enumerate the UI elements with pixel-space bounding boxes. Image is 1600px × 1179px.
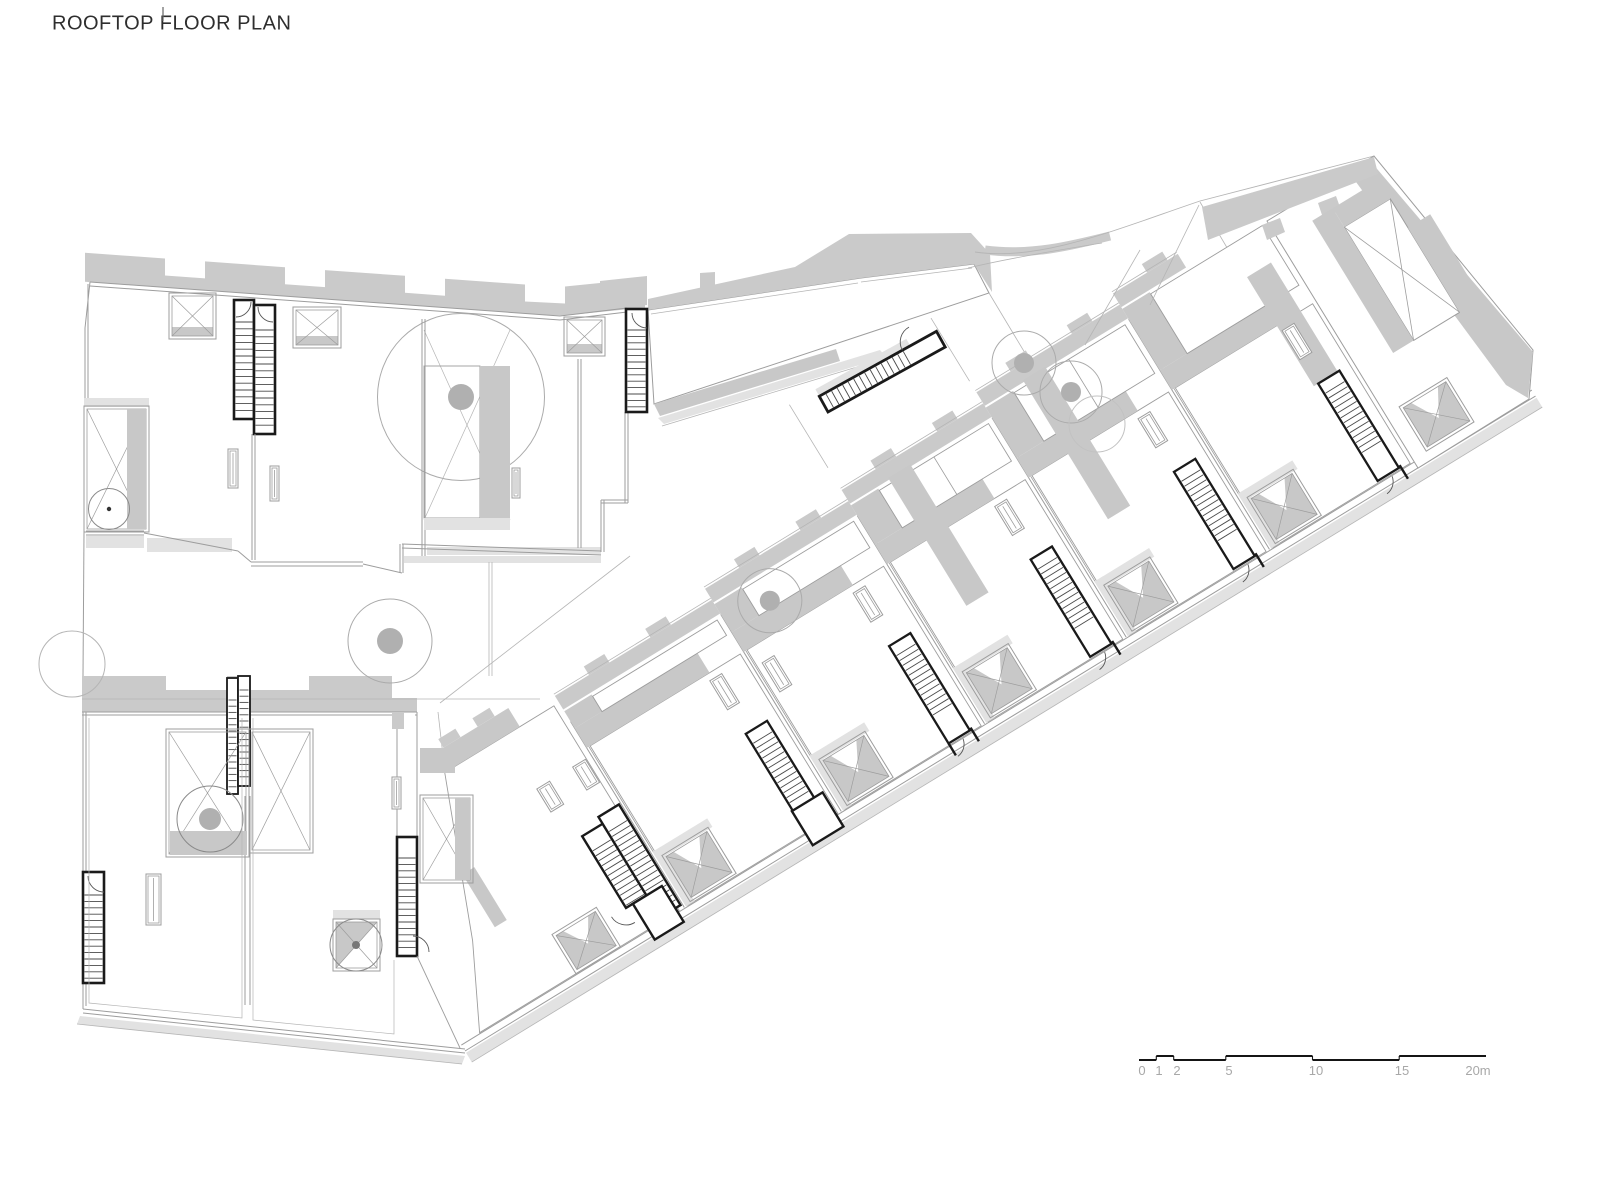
svg-text:15: 15 <box>1395 1063 1409 1078</box>
svg-text:2: 2 <box>1173 1063 1180 1078</box>
svg-text:0: 0 <box>1138 1063 1145 1078</box>
svg-text:ROOFTOP FLOOR PLAN: ROOFTOP FLOOR PLAN <box>52 13 291 35</box>
svg-text:5: 5 <box>1225 1063 1232 1078</box>
svg-text:20m: 20m <box>1465 1063 1490 1078</box>
svg-text:10: 10 <box>1309 1063 1323 1078</box>
svg-text:1: 1 <box>1155 1063 1162 1078</box>
